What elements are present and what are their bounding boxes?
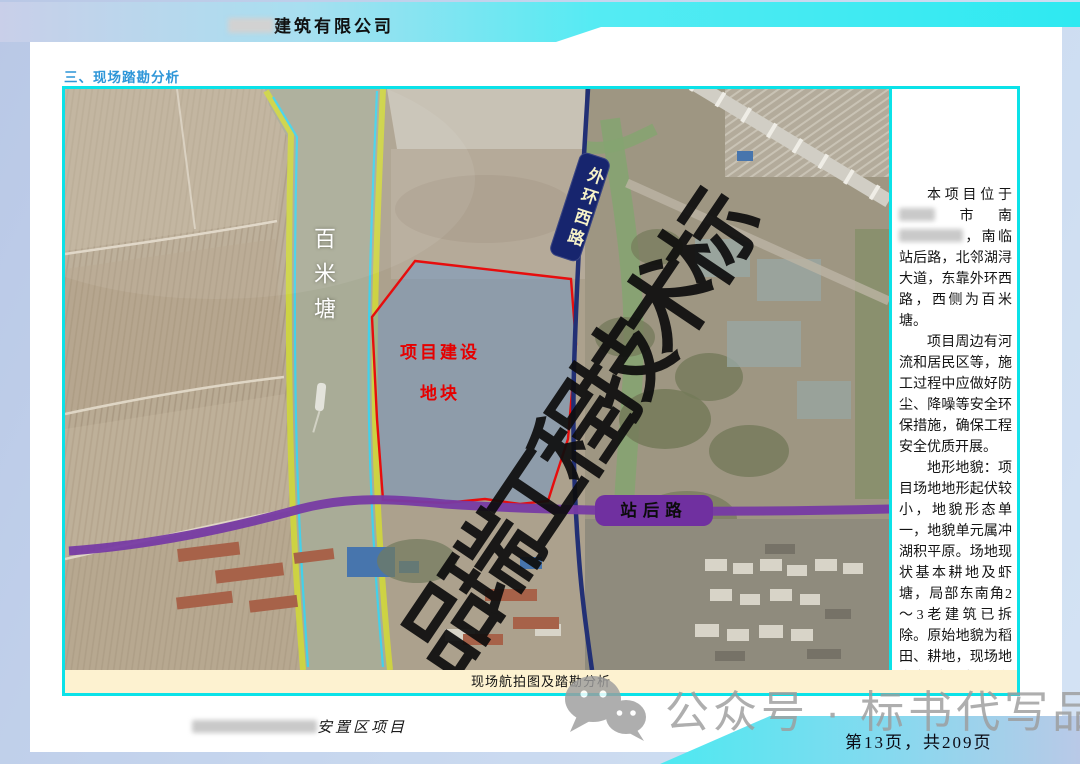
survey-note-paragraph: 本项目位于市南，南临站后路，北邻湖浔大道，东靠外环西路，西侧为百米塘。 (899, 185, 1012, 332)
project-name-footer: 安置区项目 (192, 716, 407, 737)
social-watermark: 公众号 · 标书代写品瑞 (563, 674, 1080, 742)
social-watermark-text: 公众号 · 标书代写品瑞 (665, 676, 1080, 740)
redacted-text (192, 720, 317, 733)
document-page: { "colors":{ "accent_cyan":"#0be2e8", "h… (0, 0, 1080, 764)
redacted-text (899, 229, 963, 242)
section-title: 三、现场踏勘分析 (64, 66, 180, 86)
plot-label-line2: 地块 (370, 373, 510, 414)
survey-notes-panel: 本项目位于市南，南临站后路，北邻湖浔大道，东靠外环西路，西侧为百米塘。项目周边有… (892, 89, 1017, 670)
plot-label: 项目建设 地块 (370, 332, 510, 414)
aerial-photo: 百米塘 项目建设 地块 外环西路 站后路 品瑞工程技术标 (65, 89, 889, 670)
survey-note-paragraph: 项目周边有河流和居民区等，施工过程中应做好防尘、降噪等安全环保措施，确保工程安全… (899, 332, 1012, 458)
wechat-icon (563, 674, 651, 742)
redacted-text (228, 18, 274, 33)
survey-note-paragraph: 地形地貌：项目场地地形起伏较小，地貌形态单一，地貌单元属冲湖积平原。场地现状基本… (899, 458, 1012, 696)
site-survey-figure: 百米塘 项目建设 地块 外环西路 站后路 品瑞工程技术标 本项目位于市南，南临站… (62, 86, 1020, 696)
plot-label-line1: 项目建设 (370, 332, 510, 373)
road-label-zhanhou: 站后路 (595, 495, 713, 526)
river-label: 百米塘 (307, 227, 339, 332)
company-name: 建筑有限公司 (228, 12, 394, 37)
redacted-text (899, 208, 935, 221)
